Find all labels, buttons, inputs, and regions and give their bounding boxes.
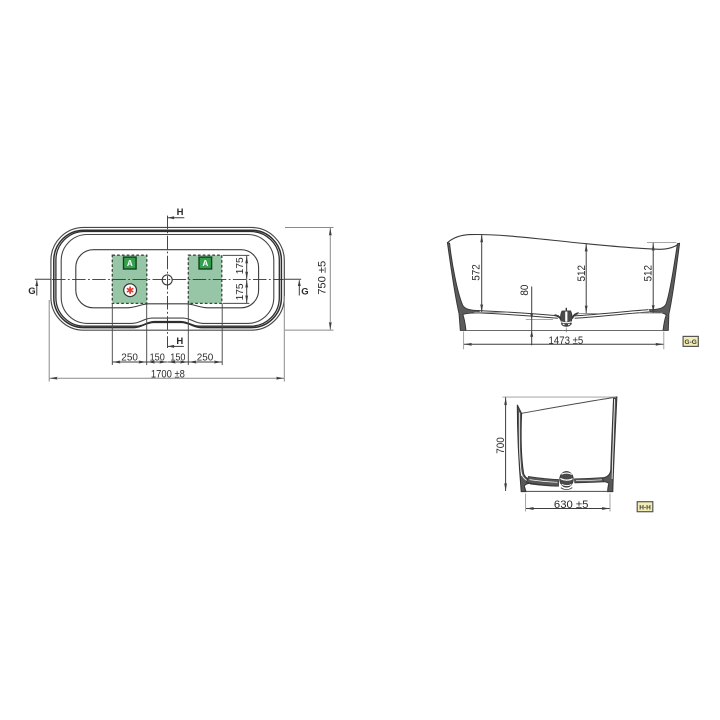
svg-text:A: A: [127, 259, 133, 268]
svg-text:512: 512: [576, 265, 588, 282]
svg-text:150: 150: [170, 352, 185, 364]
svg-text:H: H: [177, 207, 184, 218]
svg-text:G-G: G-G: [685, 339, 697, 346]
svg-text:A: A: [202, 259, 208, 268]
svg-text:H-H: H-H: [639, 504, 651, 511]
svg-text:G: G: [301, 287, 308, 298]
svg-text:250: 250: [197, 352, 214, 364]
svg-text:700: 700: [495, 437, 507, 454]
svg-text:G: G: [28, 286, 35, 297]
svg-text:512: 512: [643, 265, 655, 282]
svg-text:1473 ±5: 1473 ±5: [549, 335, 584, 347]
svg-text:175: 175: [234, 283, 246, 300]
svg-text:1700 ±8: 1700 ±8: [151, 369, 185, 381]
svg-text:175: 175: [234, 257, 246, 274]
svg-text:630 ±5: 630 ±5: [554, 499, 589, 511]
svg-text:250: 250: [121, 352, 138, 364]
svg-text:750 ±5: 750 ±5: [317, 261, 329, 295]
svg-text:150: 150: [150, 352, 165, 364]
svg-text:H: H: [176, 336, 183, 347]
svg-text:572: 572: [470, 264, 482, 281]
svg-text:80: 80: [519, 285, 531, 296]
